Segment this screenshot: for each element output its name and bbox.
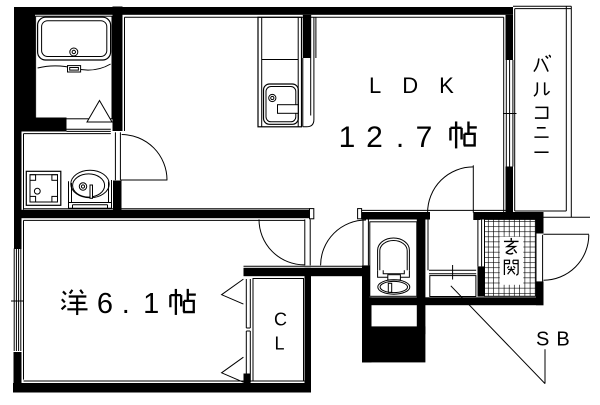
svg-text:LDK: LDK <box>369 73 475 98</box>
svg-text:6: 6 <box>97 288 113 320</box>
svg-text:.: . <box>396 121 404 154</box>
svg-text:1: 1 <box>143 288 159 320</box>
svg-text:L: L <box>274 334 284 354</box>
svg-text:1: 1 <box>339 121 356 154</box>
svg-text:C: C <box>274 310 287 330</box>
svg-text:2: 2 <box>366 121 383 154</box>
svg-text:.: . <box>122 288 130 320</box>
svg-text:7: 7 <box>416 121 433 154</box>
svg-text:SB: SB <box>536 329 577 351</box>
